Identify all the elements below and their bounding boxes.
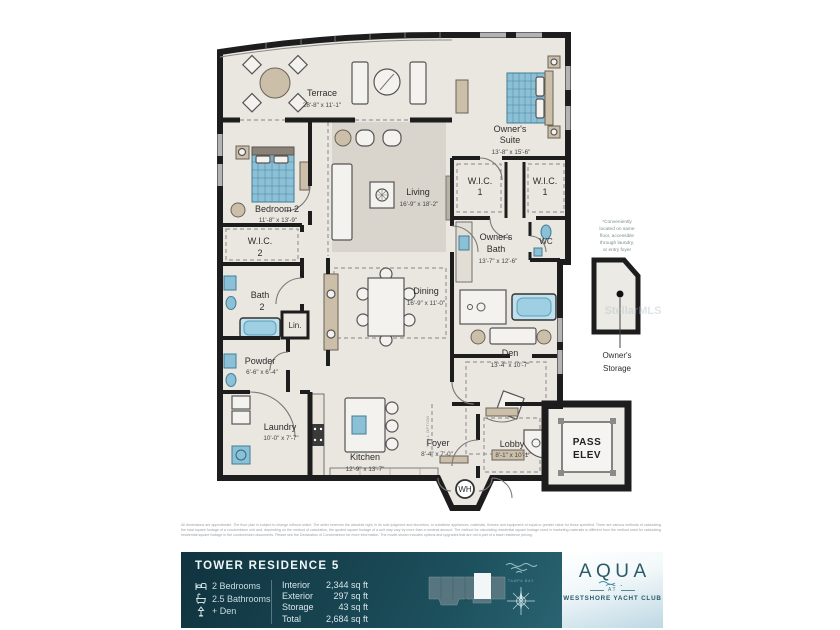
note-line: or entry foyer	[603, 247, 632, 253]
room-dims-owners-suite: 13'-8" x 15'-6"	[492, 149, 531, 156]
watermark: StellarMLS	[605, 305, 662, 317]
room-label-wc: WC	[539, 237, 553, 246]
building-keyplan	[427, 567, 507, 613]
logo-at: AT	[608, 587, 617, 593]
room-label-pass-elev-1: PASS	[573, 437, 602, 448]
room-label-owners-bath-2: Bath	[487, 244, 506, 254]
room-dims-kitchen: 12'-9" x 13'-7"	[346, 466, 385, 473]
storage-note: *Conveniently located on same floor, acc…	[599, 219, 635, 253]
floor-plan: WH StellarMLS Terrace 28'-8" x 11'-1" Ow…	[180, 26, 663, 526]
room-label-owners-storage-1: Owner's	[602, 351, 631, 360]
area-label: Total	[282, 614, 301, 625]
room-dims-bedroom2: 11'-8" x 13'-9"	[259, 217, 297, 224]
room-label-owners-storage-2: Storage	[603, 364, 632, 373]
feature-label: + Den	[212, 606, 236, 616]
water-heater: WH	[456, 480, 474, 498]
room-label-den: Den	[502, 348, 519, 358]
lamp-icon	[195, 606, 207, 617]
area-row-interior: Interior 2,344 sq ft	[282, 580, 368, 591]
room-dims-foyer: 8'-4" x 7'-0"	[421, 451, 453, 458]
logo-rule-right	[621, 590, 635, 591]
room-label-terrace: Terrace	[307, 88, 337, 98]
room-dims-living: 16'-9" x 18'-2"	[400, 201, 439, 208]
room-label-bath2-2: 2	[259, 302, 264, 312]
feature-list: 2 Bedrooms 2.5 Bathrooms + Den	[195, 580, 271, 618]
bay-compass-column: TAMPA BAY	[502, 560, 540, 621]
feature-label: 2.5 Bathrooms	[212, 594, 271, 604]
note-line: *Conveniently	[602, 219, 632, 225]
room-dims-terrace: 28'-8" x 11'-1"	[303, 102, 341, 109]
room-label-bath2-1: Bath	[251, 290, 270, 300]
logo-rule-left	[590, 590, 604, 591]
room-dims-laundry: 10'-0" x 7'-7"	[263, 435, 298, 442]
wall-option-label: WALL OPTION	[426, 415, 430, 446]
room-dims-den: 13'-4" x 10'-7"	[491, 362, 530, 369]
area-row-total: Total 2,684 sq ft	[282, 614, 368, 625]
bath-icon	[195, 593, 207, 604]
room-label-wic2-1: W.I.C.	[248, 236, 273, 246]
area-value: 2,684 sq ft	[326, 614, 368, 625]
disclaimer-text: All dimensions are approximate. The floo…	[181, 523, 661, 538]
waves-icon	[504, 562, 538, 573]
note-line: through laundry,	[600, 240, 634, 246]
footer-divider	[271, 580, 272, 624]
room-label-wic1-left-2: 1	[477, 187, 482, 197]
note-line: floor, accessible	[600, 233, 634, 239]
area-row-exterior: Exterior 297 sq ft	[282, 591, 368, 602]
logo-at-row: AT	[562, 587, 663, 593]
room-label-bedroom2: Bedroom 2	[255, 204, 299, 214]
area-row-storage: Storage 43 sq ft	[282, 602, 368, 613]
logo-club-name: WESTSHORE YACHT CLUB	[562, 595, 663, 602]
room-dims-dining: 16'-9" x 11'-0"	[407, 300, 445, 307]
footer-bar: TOWER RESIDENCE 5 2 Bedrooms 2.5 Bathroo…	[181, 552, 663, 628]
footer-info-panel: TOWER RESIDENCE 5 2 Bedrooms 2.5 Bathroo…	[181, 552, 562, 628]
area-value: 297 sq ft	[333, 591, 368, 602]
area-label: Exterior	[282, 591, 313, 602]
room-label-pass-elev-2: ELEV	[573, 450, 601, 461]
room-label-powder: Powder	[245, 356, 276, 366]
room-dims-powder: 6'-6" x 6'-4"	[246, 369, 278, 376]
room-label-wic1-left-1: W.I.C.	[468, 176, 493, 186]
room-label-linen: Lin.	[289, 321, 302, 330]
brand-logo-panel: AQUA AT WESTSHORE YACHT CLUB	[562, 552, 663, 628]
logo-aqua: AQUA	[562, 561, 663, 583]
page: WH StellarMLS Terrace 28'-8" x 11'-1" Ow…	[0, 0, 840, 630]
room-dims-lobby: 8'-1" x 10'-1"	[495, 452, 530, 459]
room-label-owners-bath-1: Owner's	[480, 232, 513, 242]
room-label-living: Living	[406, 187, 430, 197]
room-label-dining: Dining	[413, 286, 439, 296]
note-line: located on same	[599, 226, 635, 232]
room-label-kitchen: Kitchen	[350, 452, 380, 462]
feature-label: 2 Bedrooms	[212, 581, 261, 591]
room-label-wic2-2: 2	[257, 248, 262, 258]
room-label-owners-suite-1: Owner's	[494, 124, 527, 134]
bed-icon	[195, 581, 207, 592]
highlighted-unit	[474, 573, 491, 599]
residence-title: TOWER RESIDENCE 5	[195, 560, 340, 572]
bay-caption: TAMPA BAY	[502, 579, 540, 583]
room-label-lobby: Lobby	[500, 439, 525, 449]
wh-label: WH	[458, 485, 472, 494]
feature-bathrooms: 2.5 Bathrooms	[195, 593, 271, 606]
feature-bedrooms: 2 Bedrooms	[195, 580, 271, 593]
feature-den: + Den	[195, 605, 271, 618]
compass-icon	[506, 586, 536, 616]
area-value: 43 sq ft	[338, 602, 368, 613]
room-label-laundry: Laundry	[264, 422, 297, 432]
area-label: Interior	[282, 580, 310, 591]
room-label-wic1-right-2: 1	[542, 187, 547, 197]
room-dims-owners-bath: 13'-7" x 12'-6"	[479, 258, 518, 265]
area-label: Storage	[282, 602, 314, 613]
room-label-wic1-right-1: W.I.C.	[533, 176, 558, 186]
area-value: 2,344 sq ft	[326, 580, 368, 591]
room-label-owners-suite-2: Suite	[500, 135, 521, 145]
area-table: Interior 2,344 sq ft Exterior 297 sq ft …	[282, 580, 368, 625]
